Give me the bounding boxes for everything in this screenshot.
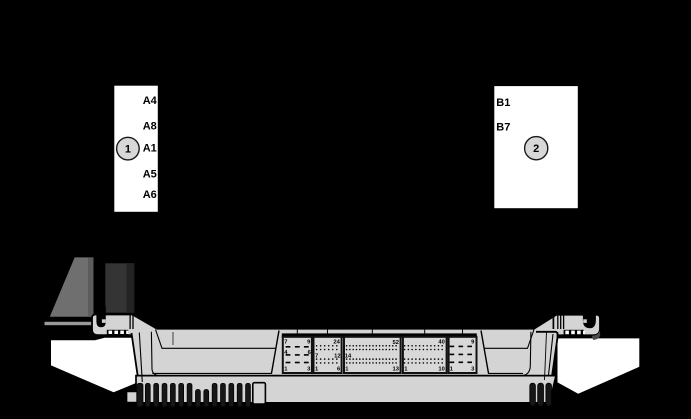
svg-text:14: 14 [345,353,352,359]
svg-text:7: 7 [315,353,318,359]
svg-text:1: 1 [125,144,131,156]
svg-text:40: 40 [438,340,444,346]
svg-text:A6: A6 [143,189,157,201]
svg-text:12: 12 [334,353,340,359]
svg-text:A8: A8 [143,121,157,133]
svg-text:B1: B1 [496,97,510,109]
svg-text:2: 2 [533,143,539,155]
svg-text:A1: A1 [143,143,157,155]
svg-text:52: 52 [393,340,399,346]
svg-text:24: 24 [333,340,340,346]
svg-text:A4: A4 [143,95,158,107]
svg-text:B7: B7 [496,122,510,134]
svg-text:7: 7 [284,340,287,346]
svg-text:10: 10 [438,366,444,372]
svg-text:A5: A5 [143,169,157,181]
svg-text:13: 13 [393,366,400,372]
